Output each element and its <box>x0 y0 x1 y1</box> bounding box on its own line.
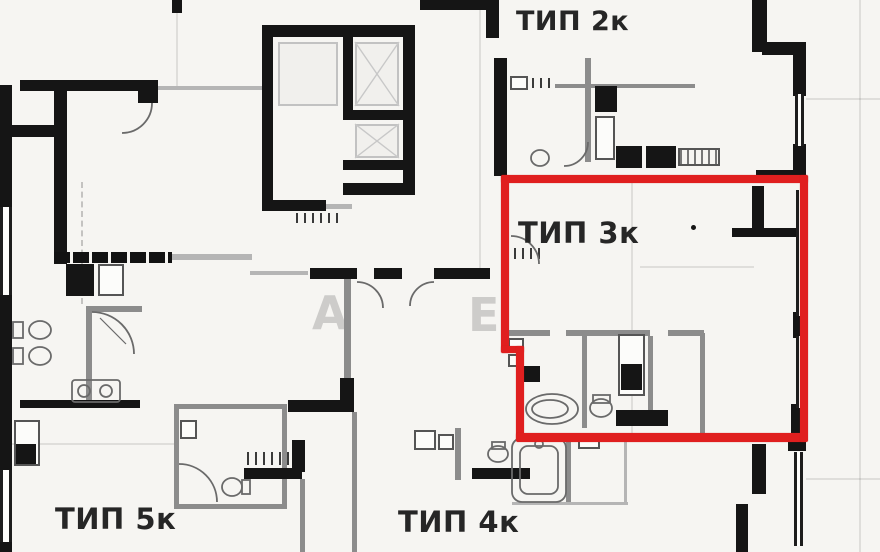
shower-arc <box>92 312 134 354</box>
double-sink <box>72 380 120 402</box>
highlight-outline-segment <box>501 175 808 183</box>
unit-label-5k: ТИП 5к <box>55 502 176 536</box>
highlight-outline-segment <box>800 175 808 442</box>
unit-label-3k: ТИП 3к <box>518 216 639 250</box>
highlight-outline-segment <box>516 346 524 441</box>
toilet <box>590 395 612 417</box>
door-arc <box>564 142 588 166</box>
sink <box>531 150 549 166</box>
unit-label-2k: ТИП 2к <box>516 6 629 37</box>
door-arc <box>410 282 434 306</box>
bidet <box>13 347 51 365</box>
highlight-outline-segment <box>516 433 806 442</box>
highlight-outline-segment <box>501 175 509 353</box>
door-arc <box>357 282 383 308</box>
door-arc <box>122 103 152 133</box>
toilet <box>488 442 508 462</box>
bathtub <box>512 438 566 502</box>
toilet <box>222 478 250 496</box>
shower-arc <box>179 464 217 502</box>
floor-plan: А Е <box>0 0 880 552</box>
bathtub <box>526 394 578 424</box>
toilet <box>13 321 51 339</box>
elevator-cross <box>355 42 399 158</box>
unit-label-4k: ТИП 4к <box>398 505 519 539</box>
fixtures-layer <box>0 0 880 552</box>
